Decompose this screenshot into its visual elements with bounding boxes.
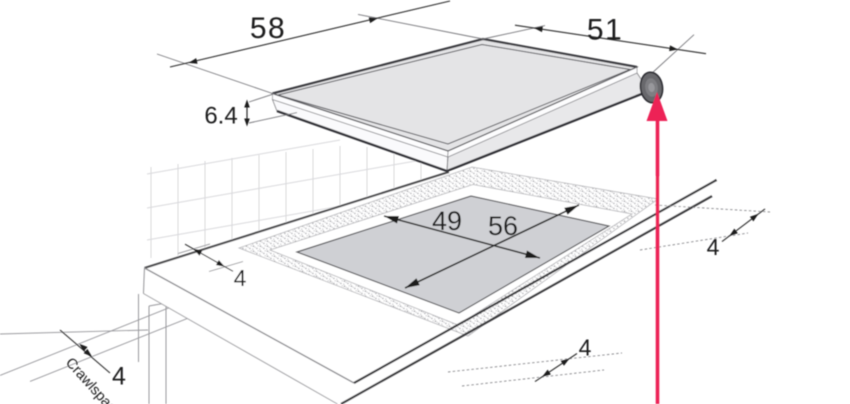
svg-text:4: 4 (234, 265, 247, 291)
svg-text:4: 4 (112, 363, 126, 391)
svg-text:56: 56 (488, 211, 518, 241)
svg-text:58: 58 (250, 12, 286, 45)
svg-text:6.4: 6.4 (204, 103, 237, 130)
svg-text:51: 51 (587, 13, 623, 46)
svg-text:4: 4 (707, 234, 720, 260)
svg-text:4: 4 (579, 334, 592, 360)
svg-text:49: 49 (432, 206, 462, 236)
